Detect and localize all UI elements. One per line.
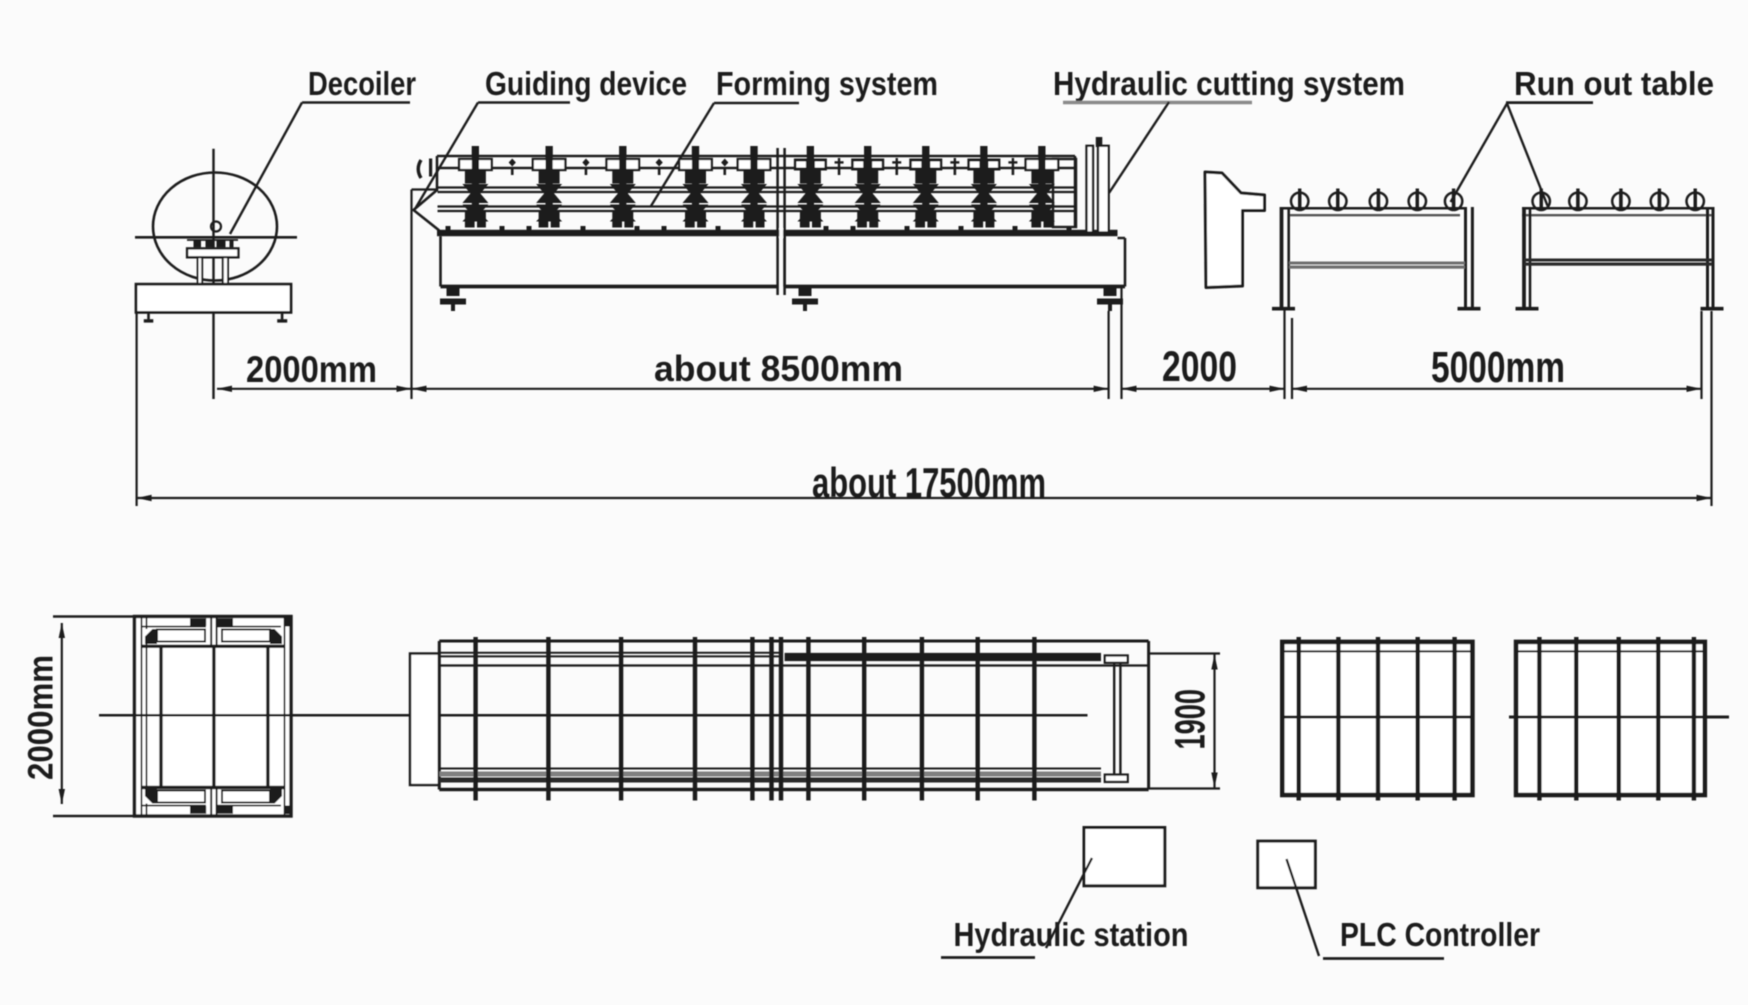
svg-text:2000mm: 2000mm: [246, 348, 377, 390]
svg-text:Forming system: Forming system: [716, 65, 938, 102]
svg-text:about 17500mm: about 17500mm: [812, 459, 1046, 506]
svg-text:PLC Controller: PLC Controller: [1340, 916, 1540, 953]
svg-text:2000: 2000: [1162, 343, 1237, 391]
svg-text:about 8500mm: about 8500mm: [654, 348, 903, 389]
svg-text:Hydraulic cutting system: Hydraulic cutting system: [1053, 65, 1405, 102]
svg-text:Run out table: Run out table: [1514, 65, 1714, 102]
svg-text:5000mm: 5000mm: [1431, 344, 1565, 392]
svg-text:Guiding device: Guiding device: [485, 65, 687, 102]
svg-text:2000mm: 2000mm: [21, 655, 61, 780]
svg-text:Decoiler: Decoiler: [308, 65, 416, 102]
svg-text:1900: 1900: [1167, 689, 1215, 750]
svg-text:Hydraulic station: Hydraulic station: [954, 916, 1189, 953]
